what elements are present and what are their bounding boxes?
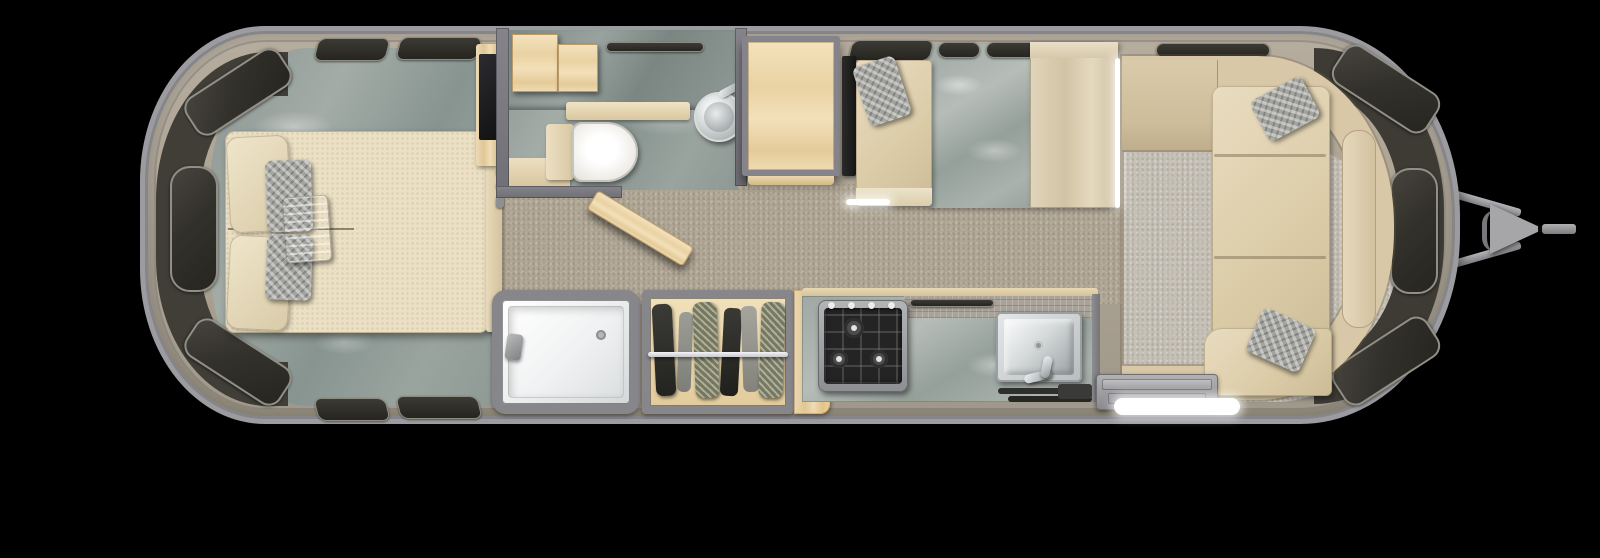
bathroom-counter-edge (566, 102, 690, 120)
dinette-tile-floor (928, 44, 1030, 208)
dinette-window-2 (938, 42, 980, 58)
dinette-bench-led-strip (846, 199, 890, 205)
entry-step-tread-1 (1102, 379, 1212, 390)
wardrobe-hanging-rod (648, 352, 788, 357)
shower-pan (508, 306, 624, 398)
dinette-table (742, 36, 840, 176)
rear-window-middle (170, 166, 218, 292)
bedroom-window-top-2 (395, 37, 483, 60)
galley-window-slot (910, 299, 994, 307)
vessel-sink-basin (704, 102, 734, 132)
sofa-lumbar-panel (1342, 130, 1376, 328)
dinette-cabinet-led-strip (1115, 58, 1120, 208)
hitch-coupler-gap (1538, 226, 1542, 232)
bathroom-overhead-cabinet-2 (558, 44, 598, 92)
bathroom-overhead-cabinet-1 (512, 34, 558, 92)
hitch-triangle-plate (1490, 204, 1544, 254)
bedroom-window-bottom-2 (395, 396, 483, 419)
bedroom-window-top-1 (313, 38, 391, 61)
cooktop-knobs (826, 300, 902, 310)
tv-screen (479, 54, 497, 140)
entry-illuminated-rail (1114, 398, 1240, 415)
bedroom-window-bottom-1 (313, 398, 391, 421)
bathroom-wall-left (496, 28, 509, 198)
cooktop-burner-cap-3 (876, 356, 882, 362)
toilet-tank (546, 124, 574, 180)
dinette-table-front-edge (748, 176, 834, 185)
toilet-bowl (572, 122, 638, 182)
entry-floor-mat (1058, 384, 1092, 399)
hitch-coupler (1542, 224, 1576, 234)
sofa-shelf-return (1122, 60, 1218, 152)
bed-throw-blanket (282, 194, 332, 263)
shower-drain (596, 330, 606, 340)
floor-plan-stage (0, 0, 1600, 558)
bathroom-vent-window (606, 42, 704, 52)
sofa-chaise-seam-1 (1214, 154, 1326, 157)
cooktop-burner-cap-2 (836, 356, 842, 362)
front-window-middle (1390, 168, 1438, 294)
dinette-tall-cabinet-top-band (1030, 42, 1118, 58)
sofa-chaise-seam-2 (1214, 256, 1326, 259)
kitchen-sink-drain (1034, 341, 1043, 350)
cooktop-surface (824, 308, 902, 384)
cooktop-burner-cap-1 (851, 325, 857, 331)
dinette-tall-cabinet (1030, 42, 1118, 208)
